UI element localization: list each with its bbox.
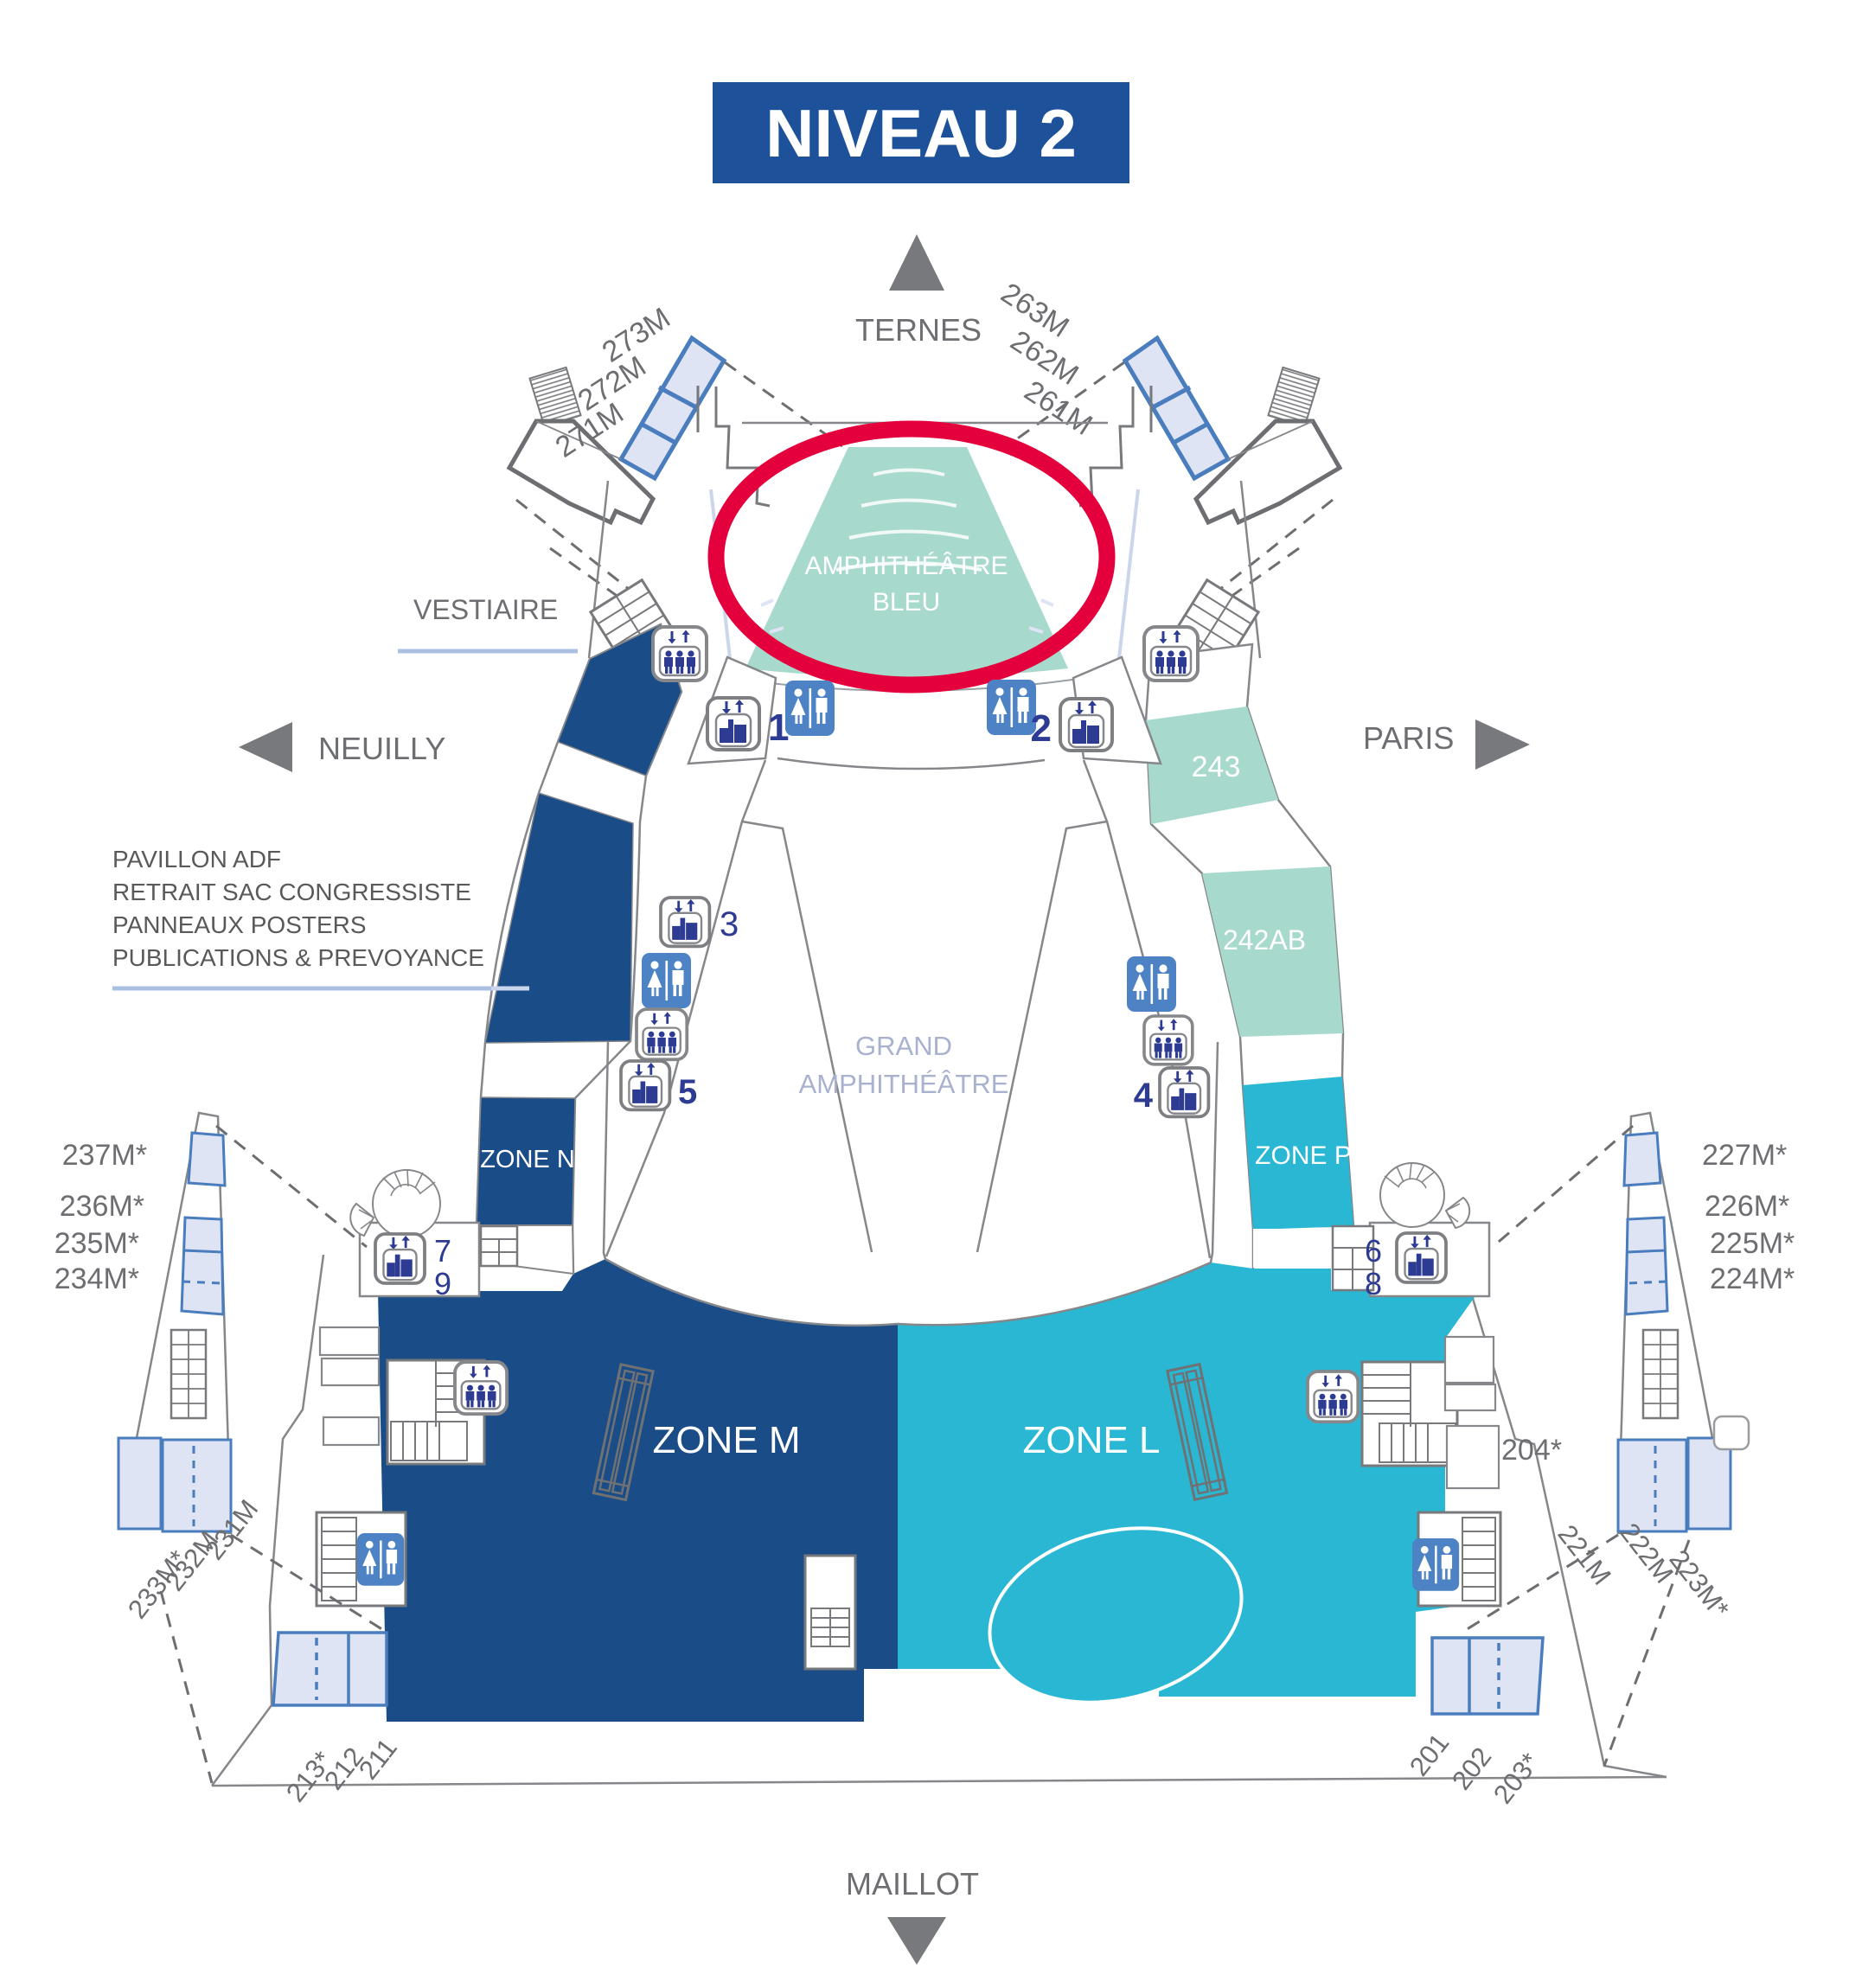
- svg-text:237M*: 237M*: [62, 1139, 147, 1172]
- svg-text:204*: 204*: [1501, 1434, 1562, 1467]
- svg-text:NIVEAU 2: NIVEAU 2: [765, 95, 1077, 171]
- svg-text:NEUILLY: NEUILLY: [318, 731, 445, 766]
- svg-text:234M*: 234M*: [54, 1262, 139, 1295]
- svg-text:227M*: 227M*: [1702, 1139, 1787, 1172]
- svg-text:4: 4: [1134, 1077, 1154, 1115]
- svg-text:226M*: 226M*: [1705, 1190, 1789, 1223]
- svg-text:5: 5: [678, 1073, 697, 1111]
- svg-text:MAILLOT: MAILLOT: [846, 1866, 979, 1902]
- svg-text:ZONE L: ZONE L: [1023, 1419, 1161, 1461]
- svg-text:225M*: 225M*: [1710, 1227, 1795, 1260]
- svg-text:ZONE M: ZONE M: [652, 1419, 800, 1461]
- svg-text:3: 3: [720, 905, 739, 943]
- svg-text:242AB: 242AB: [1223, 924, 1306, 956]
- svg-text:2: 2: [1031, 707, 1052, 750]
- svg-text:9: 9: [434, 1266, 451, 1301]
- svg-text:PUBLICATIONS & PREVOYANCE: PUBLICATIONS & PREVOYANCE: [112, 944, 484, 971]
- svg-text:TERNES: TERNES: [855, 312, 982, 348]
- svg-text:VESTIAIRE: VESTIAIRE: [413, 594, 558, 625]
- svg-text:PARIS: PARIS: [1363, 720, 1454, 756]
- svg-text:236M*: 236M*: [60, 1190, 144, 1223]
- svg-text:ZONE N: ZONE N: [480, 1146, 575, 1173]
- svg-text:AMPHITHÉÂTRE: AMPHITHÉÂTRE: [804, 552, 1008, 580]
- svg-text:6: 6: [1365, 1233, 1382, 1269]
- svg-text:GRAND: GRAND: [855, 1031, 952, 1061]
- svg-text:ZONE P: ZONE P: [1255, 1141, 1352, 1170]
- svg-text:224M*: 224M*: [1710, 1262, 1795, 1295]
- svg-text:235M*: 235M*: [54, 1227, 139, 1260]
- svg-text:243: 243: [1192, 751, 1241, 783]
- svg-text:AMPHITHÉÂTRE: AMPHITHÉÂTRE: [799, 1069, 1009, 1099]
- svg-text:PANNEAUX POSTERS: PANNEAUX POSTERS: [112, 911, 367, 938]
- svg-text:PAVILLON ADF: PAVILLON ADF: [112, 846, 281, 873]
- svg-text:BLEU: BLEU: [873, 588, 940, 617]
- svg-text:7: 7: [434, 1233, 451, 1269]
- svg-text:RETRAIT SAC CONGRESSISTE: RETRAIT SAC CONGRESSISTE: [112, 879, 471, 905]
- svg-text:8: 8: [1365, 1266, 1382, 1301]
